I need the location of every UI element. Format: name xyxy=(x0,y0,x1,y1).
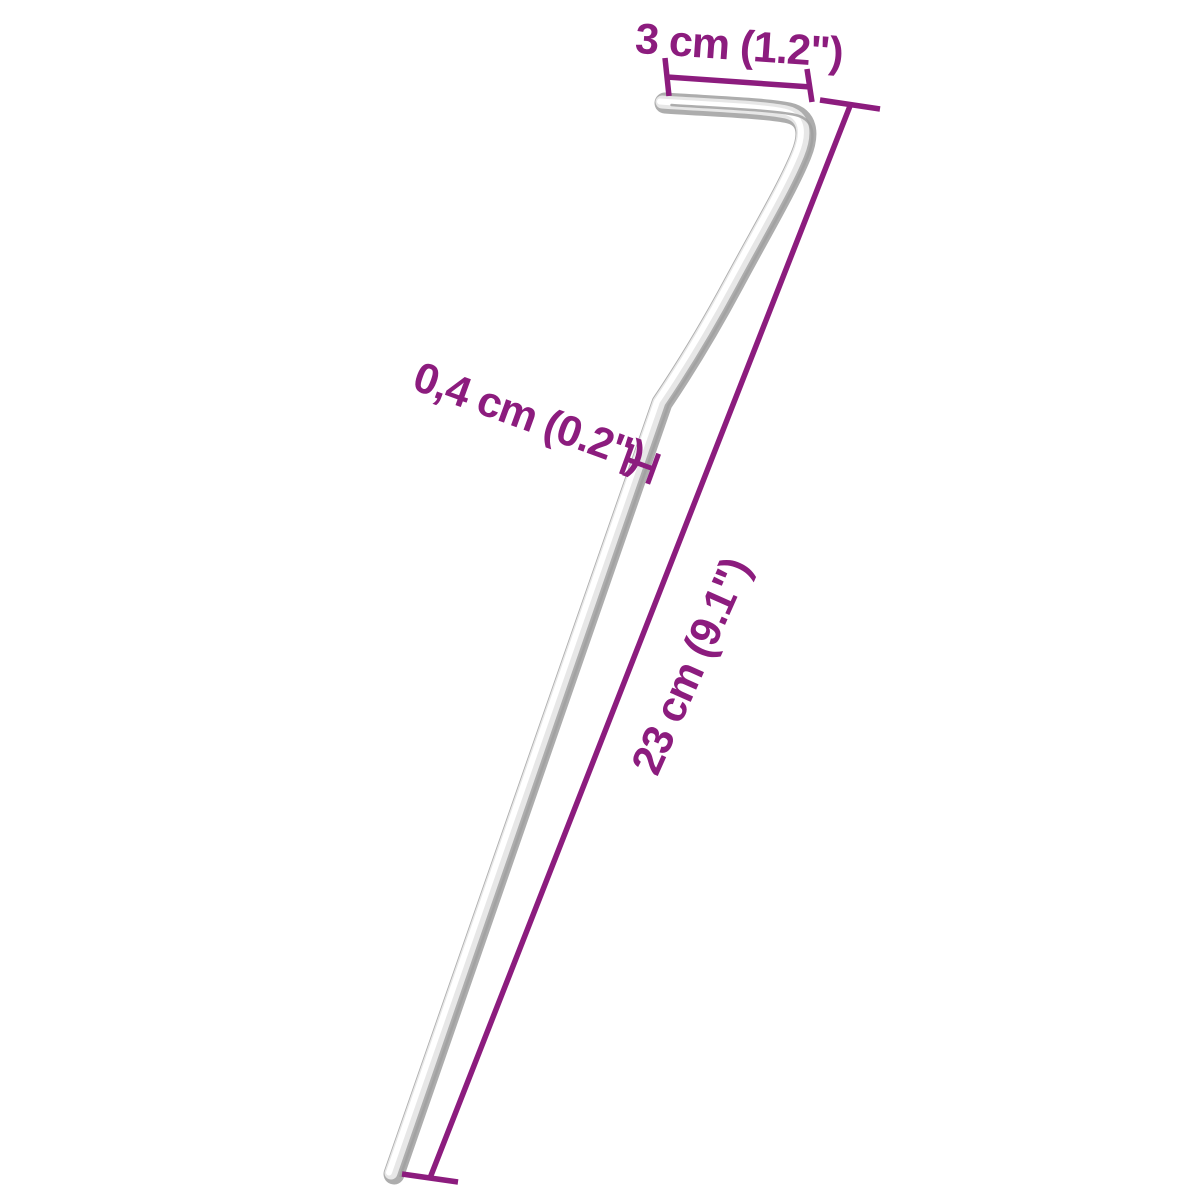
diameter-dimension: 0,4 cm (0.2") xyxy=(407,353,659,484)
length-dimension: 23 cm (9.1") xyxy=(402,100,880,1182)
peg-body-shadow-line xyxy=(401,105,813,1176)
product-image: 3 cm (1.2") 0,4 cm (0.2") 23 cm (9.1") xyxy=(0,0,1200,1200)
diameter-dimension-label: 0,4 cm (0.2") xyxy=(407,353,650,481)
hook-width-dimension: 3 cm (1.2") xyxy=(634,15,845,102)
length-dimension-line xyxy=(430,106,850,1178)
dimension-diagram: 3 cm (1.2") 0,4 cm (0.2") 23 cm (9.1") xyxy=(0,0,1200,1200)
tent-peg-illustration xyxy=(389,102,812,1177)
hook-width-dimension-line xyxy=(667,77,811,87)
length-dimension-label: 23 cm (9.1") xyxy=(622,551,760,781)
